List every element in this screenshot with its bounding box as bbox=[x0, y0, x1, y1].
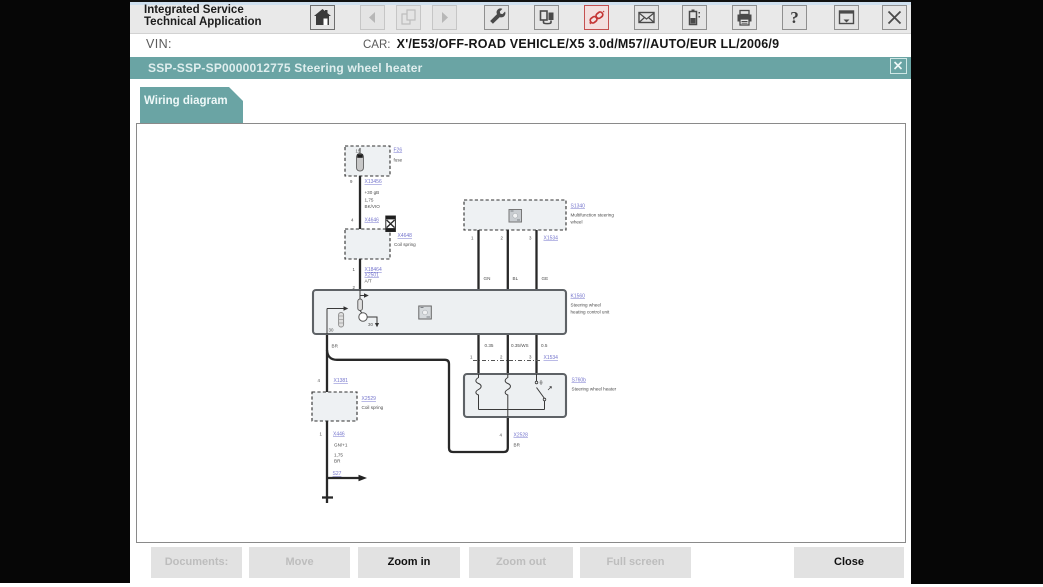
svg-text:θ: θ bbox=[540, 381, 543, 387]
svg-text:1: 1 bbox=[320, 432, 323, 437]
svg-text:Steering wheel heater: Steering wheel heater bbox=[572, 387, 617, 392]
svg-text:1: 1 bbox=[471, 236, 474, 241]
svg-text:BR: BR bbox=[514, 443, 521, 448]
svg-text:30: 30 bbox=[329, 328, 334, 333]
svg-text:+30 gB: +30 gB bbox=[365, 190, 380, 195]
svg-text:S760b: S760b bbox=[572, 378, 587, 384]
svg-text:fuse: fuse bbox=[394, 158, 403, 163]
svg-text:2: 2 bbox=[501, 236, 504, 241]
svg-text:Multifunction steering: Multifunction steering bbox=[571, 213, 615, 218]
svg-text:0.5: 0.5 bbox=[541, 343, 548, 348]
svg-text:X4646: X4646 bbox=[365, 218, 380, 224]
svg-text:GN/+1: GN/+1 bbox=[334, 443, 348, 448]
svg-text:heating control unit: heating control unit bbox=[571, 310, 611, 315]
svg-text:Coil spring: Coil spring bbox=[362, 405, 384, 410]
svg-text:15: 15 bbox=[356, 149, 361, 154]
svg-text:3: 3 bbox=[529, 355, 532, 360]
svg-text:K1560: K1560 bbox=[571, 294, 586, 300]
svg-text:1,75: 1,75 bbox=[334, 453, 343, 458]
svg-text:BR: BR bbox=[332, 344, 339, 349]
svg-text:X13456: X13456 bbox=[365, 179, 382, 185]
svg-text:wheel: wheel bbox=[571, 220, 583, 225]
svg-text:1: 1 bbox=[470, 355, 473, 360]
svg-text:S27: S27 bbox=[333, 471, 342, 477]
svg-text:X2529: X2529 bbox=[362, 396, 377, 402]
svg-text:X1381: X1381 bbox=[334, 378, 349, 384]
svg-text:BL: BL bbox=[513, 276, 519, 281]
svg-text:X4648: X4648 bbox=[398, 233, 413, 239]
svg-text:GE: GE bbox=[542, 276, 549, 281]
svg-text:BR: BR bbox=[334, 459, 341, 464]
svg-text:0.35/WS: 0.35/WS bbox=[511, 343, 529, 348]
svg-text:0.35: 0.35 bbox=[485, 343, 494, 348]
svg-text:X2528: X2528 bbox=[514, 433, 529, 439]
svg-text:9: 9 bbox=[350, 179, 353, 184]
svg-text:1: 1 bbox=[353, 267, 356, 272]
svg-text:4: 4 bbox=[500, 433, 503, 438]
svg-text:Coil spring: Coil spring bbox=[394, 242, 416, 247]
svg-text:1,75: 1,75 bbox=[365, 198, 374, 203]
svg-text:S1340: S1340 bbox=[571, 204, 586, 210]
svg-text:?: ? bbox=[790, 8, 799, 27]
svg-text:X1534: X1534 bbox=[544, 355, 559, 361]
svg-text:4: 4 bbox=[318, 378, 321, 383]
svg-text:BK/VIO: BK/VIO bbox=[365, 204, 381, 209]
svg-text:4: 4 bbox=[351, 218, 354, 223]
svg-text:X446: X446 bbox=[333, 432, 345, 438]
svg-text:2: 2 bbox=[500, 355, 503, 360]
svg-text:X1534: X1534 bbox=[544, 236, 559, 242]
svg-text:GN: GN bbox=[484, 276, 491, 281]
svg-text:3: 3 bbox=[529, 236, 532, 241]
svg-text:30: 30 bbox=[368, 322, 373, 327]
svg-text:F26: F26 bbox=[394, 148, 403, 154]
svg-text:Steering wheel: Steering wheel bbox=[571, 303, 601, 308]
svg-text:A/T: A/T bbox=[365, 279, 372, 284]
